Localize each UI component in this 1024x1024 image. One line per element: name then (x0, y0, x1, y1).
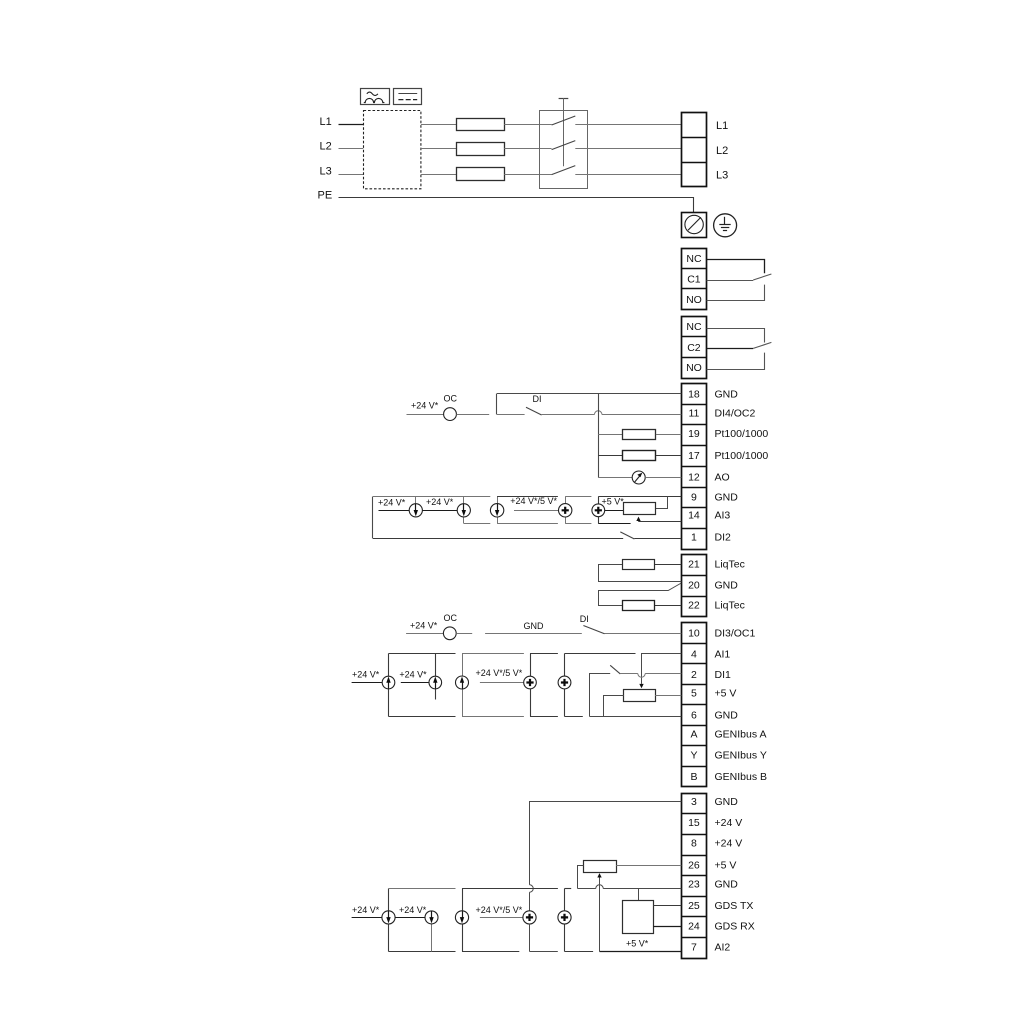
svg-text:L3: L3 (320, 166, 332, 178)
svg-text:22: 22 (688, 600, 700, 612)
svg-text:+5 V*: +5 V* (602, 496, 625, 506)
svg-text:+24 V: +24 V (715, 838, 743, 850)
svg-text:25: 25 (688, 900, 700, 912)
svg-text:8: 8 (691, 838, 697, 850)
svg-text:GDS TX: GDS TX (715, 900, 754, 912)
svg-text:GND: GND (715, 879, 739, 891)
svg-text:7: 7 (691, 942, 697, 954)
svg-text:12: 12 (688, 471, 700, 483)
svg-text:L3: L3 (716, 169, 728, 181)
svg-text:AI1: AI1 (715, 648, 731, 660)
svg-text:DI1: DI1 (715, 669, 732, 681)
svg-text:DI4/OC2: DI4/OC2 (715, 408, 756, 420)
svg-text:GND: GND (715, 389, 739, 401)
svg-text:19: 19 (688, 428, 700, 440)
svg-text:C2: C2 (687, 342, 701, 354)
svg-text:GDS RX: GDS RX (715, 921, 755, 933)
svg-text:+24 V: +24 V (715, 817, 743, 829)
svg-text:L2: L2 (320, 141, 332, 153)
svg-text:5: 5 (691, 687, 697, 699)
svg-text:+24 V*: +24 V* (410, 621, 438, 631)
svg-text:+24 V*: +24 V* (411, 401, 439, 411)
svg-text:3: 3 (691, 796, 697, 808)
svg-text:L1: L1 (320, 116, 332, 128)
svg-text:NC: NC (686, 321, 702, 333)
svg-text:PE: PE (318, 189, 333, 201)
svg-text:+24 V*: +24 V* (399, 670, 427, 680)
svg-text:4: 4 (691, 648, 697, 660)
svg-text:6: 6 (691, 709, 697, 721)
svg-text:GENIbus A: GENIbus A (715, 729, 767, 741)
svg-text:11: 11 (688, 408, 699, 420)
svg-text:GND: GND (715, 709, 739, 721)
svg-text:21: 21 (688, 559, 700, 571)
svg-text:GND: GND (524, 621, 545, 631)
svg-text:+5 V*: +5 V* (626, 938, 649, 948)
svg-text:23: 23 (688, 879, 700, 891)
svg-text:GND: GND (715, 796, 739, 808)
svg-text:LiqTec: LiqTec (715, 600, 745, 612)
svg-text:NO: NO (686, 294, 702, 306)
svg-text:GENIbus B: GENIbus B (715, 771, 768, 783)
svg-text:1: 1 (691, 532, 697, 544)
svg-text:OC: OC (444, 613, 458, 623)
svg-text:A: A (690, 729, 697, 741)
svg-text:DI2: DI2 (715, 532, 732, 544)
svg-text:15: 15 (688, 817, 700, 829)
svg-text:Pt100/1000: Pt100/1000 (715, 450, 769, 462)
svg-text:20: 20 (688, 580, 700, 592)
svg-text:GENIbus Y: GENIbus Y (715, 750, 767, 762)
svg-text:+24 V*: +24 V* (378, 498, 406, 508)
svg-text:+24 V*: +24 V* (352, 670, 380, 680)
svg-text:GND: GND (715, 580, 739, 592)
svg-text:Pt100/1000: Pt100/1000 (715, 428, 769, 440)
svg-text:17: 17 (688, 450, 700, 462)
svg-text:C1: C1 (687, 273, 701, 285)
svg-text:GND: GND (715, 491, 739, 503)
svg-text:14: 14 (688, 509, 700, 521)
svg-text:+24 V*: +24 V* (399, 905, 427, 915)
svg-text:OC: OC (444, 393, 458, 403)
svg-text:NO: NO (686, 362, 702, 374)
svg-text:AI3: AI3 (715, 509, 731, 521)
svg-text:B: B (690, 771, 697, 783)
svg-text:9: 9 (691, 491, 697, 503)
svg-text:AO: AO (715, 471, 730, 483)
svg-text:L1: L1 (716, 120, 728, 132)
svg-text:LiqTec: LiqTec (715, 559, 745, 571)
svg-text:DI: DI (580, 614, 589, 624)
svg-text:DI: DI (533, 394, 542, 404)
svg-text:+5 V: +5 V (715, 687, 737, 699)
svg-text:24: 24 (688, 921, 700, 933)
svg-text:Y: Y (690, 750, 697, 762)
svg-text:L2: L2 (716, 145, 728, 157)
svg-text:NC: NC (686, 253, 702, 265)
svg-text:26: 26 (688, 859, 700, 871)
svg-text:DI3/OC1: DI3/OC1 (715, 628, 756, 640)
svg-text:10: 10 (688, 628, 700, 640)
svg-text:+24 V*: +24 V* (426, 497, 454, 507)
svg-text:2: 2 (691, 669, 697, 681)
svg-text:+24 V*/5 V*: +24 V*/5 V* (476, 668, 523, 678)
svg-text:18: 18 (688, 389, 700, 401)
svg-text:AI2: AI2 (715, 942, 731, 954)
svg-text:+24 V*/5 V*: +24 V*/5 V* (510, 496, 557, 506)
svg-text:+5 V: +5 V (715, 859, 737, 871)
svg-text:+24 V*/5 V*: +24 V*/5 V* (476, 905, 523, 915)
svg-text:+24 V*: +24 V* (352, 905, 380, 915)
